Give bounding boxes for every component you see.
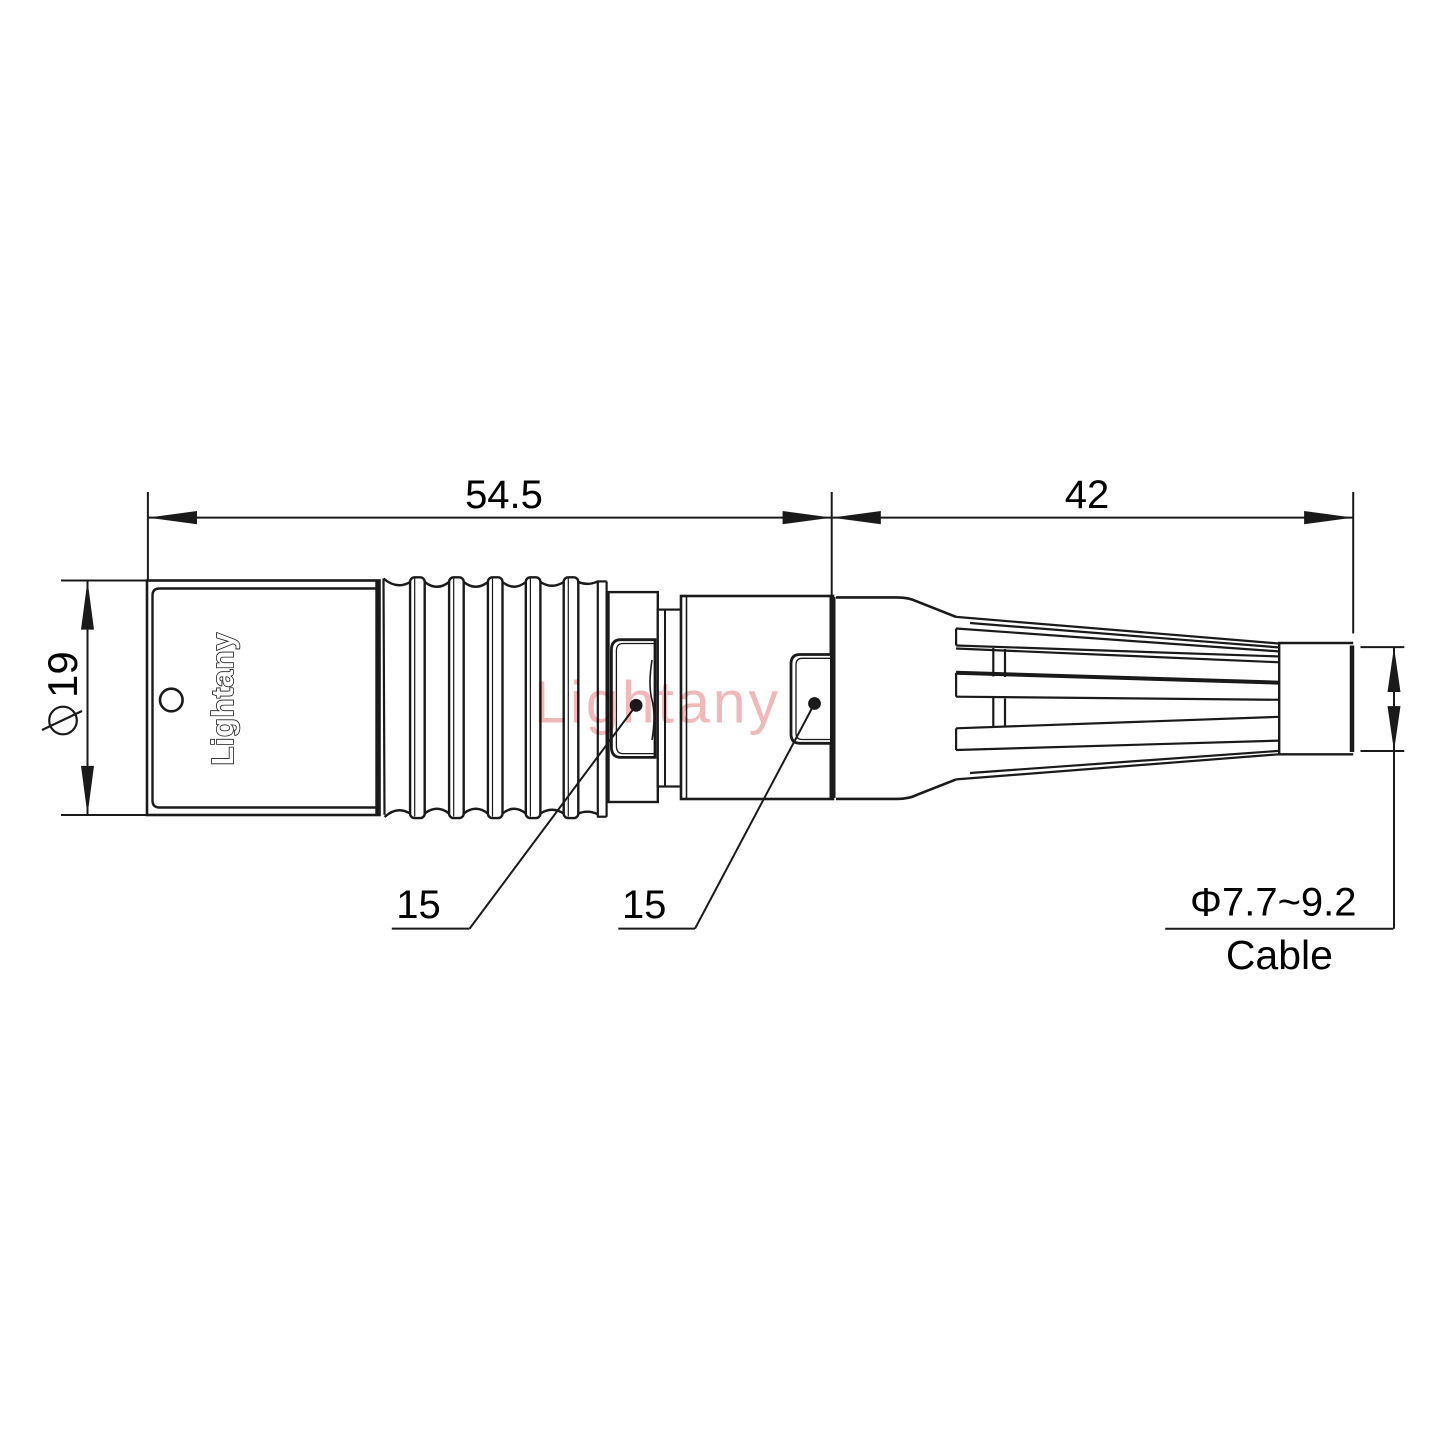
svg-text:15: 15 <box>622 883 667 927</box>
svg-text:Lightany: Lightany <box>205 632 240 765</box>
svg-text:Cable: Cable <box>1226 932 1333 978</box>
svg-text:54.5: 54.5 <box>465 473 543 517</box>
svg-text:15: 15 <box>396 883 441 927</box>
svg-text:19: 19 <box>39 651 86 698</box>
svg-text:Φ7.7~9.2: Φ7.7~9.2 <box>1190 881 1356 925</box>
svg-text:Lightany: Lightany <box>534 670 781 736</box>
svg-text:42: 42 <box>1065 473 1110 517</box>
